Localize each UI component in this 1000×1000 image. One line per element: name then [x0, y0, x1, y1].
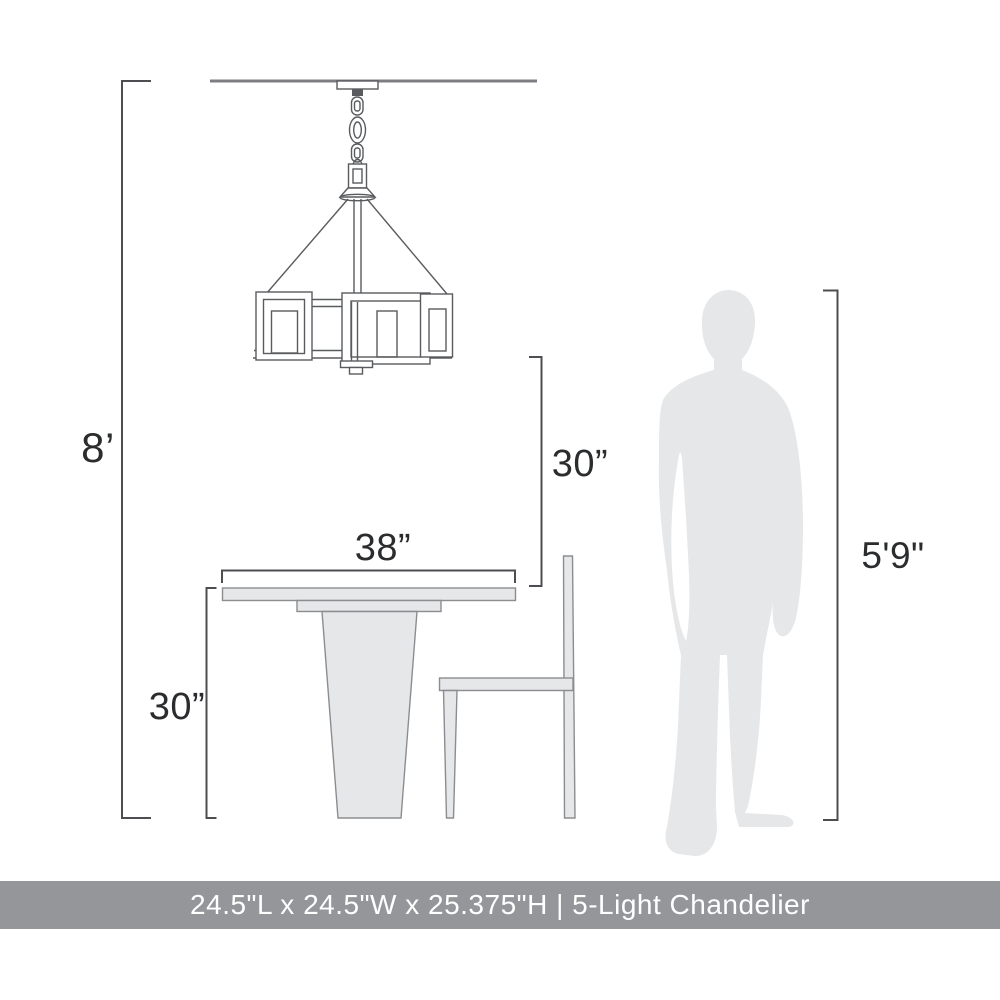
- chandelier-drum: [253, 292, 453, 374]
- dimension-line-5ft9-person: [823, 291, 838, 821]
- lantern-right: [421, 294, 453, 357]
- dining-table-drawing: [223, 588, 516, 818]
- dimension-line-38in-width: [222, 571, 515, 584]
- chandelier-drawing: [253, 81, 453, 374]
- person-silhouette: [659, 290, 803, 856]
- chandelier-collar: [352, 89, 363, 96]
- table-top: [223, 588, 516, 601]
- chandelier-to-table-label: 30”: [548, 445, 612, 483]
- lantern-left: [256, 292, 312, 360]
- table-width-label: 38”: [351, 529, 415, 567]
- product-dimensions-text: 24.5"L x 24.5"W x 25.375"H | 5-Light Cha…: [190, 889, 810, 920]
- chandelier-chain: [350, 97, 366, 173]
- lantern-center: [342, 293, 430, 364]
- chandelier-hanger: [349, 164, 367, 188]
- table-height-label: 30”: [145, 688, 209, 726]
- chandelier-canopy: [337, 81, 378, 89]
- chair-seat: [440, 678, 574, 691]
- table-apron: [297, 601, 441, 612]
- chandelier-finial: [341, 361, 373, 368]
- table-pedestal: [322, 612, 417, 819]
- diagram-artwork: [0, 0, 1000, 1000]
- ceiling-height-label: 8’: [68, 427, 128, 469]
- chandelier-arms: [266, 199, 447, 296]
- person-height-label: 5'9": [851, 537, 935, 574]
- chandelier-socket-cone: [340, 188, 375, 201]
- diagram-canvas: 8’ 30” 38” 30” 5'9" 24.5"L x 24.5"W x 25…: [0, 0, 1000, 1000]
- chair-front-leg: [444, 691, 458, 819]
- dimension-line-30in-drop: [529, 357, 542, 586]
- product-dimensions-banner: 24.5"L x 24.5"W x 25.375"H | 5-Light Cha…: [0, 881, 1000, 929]
